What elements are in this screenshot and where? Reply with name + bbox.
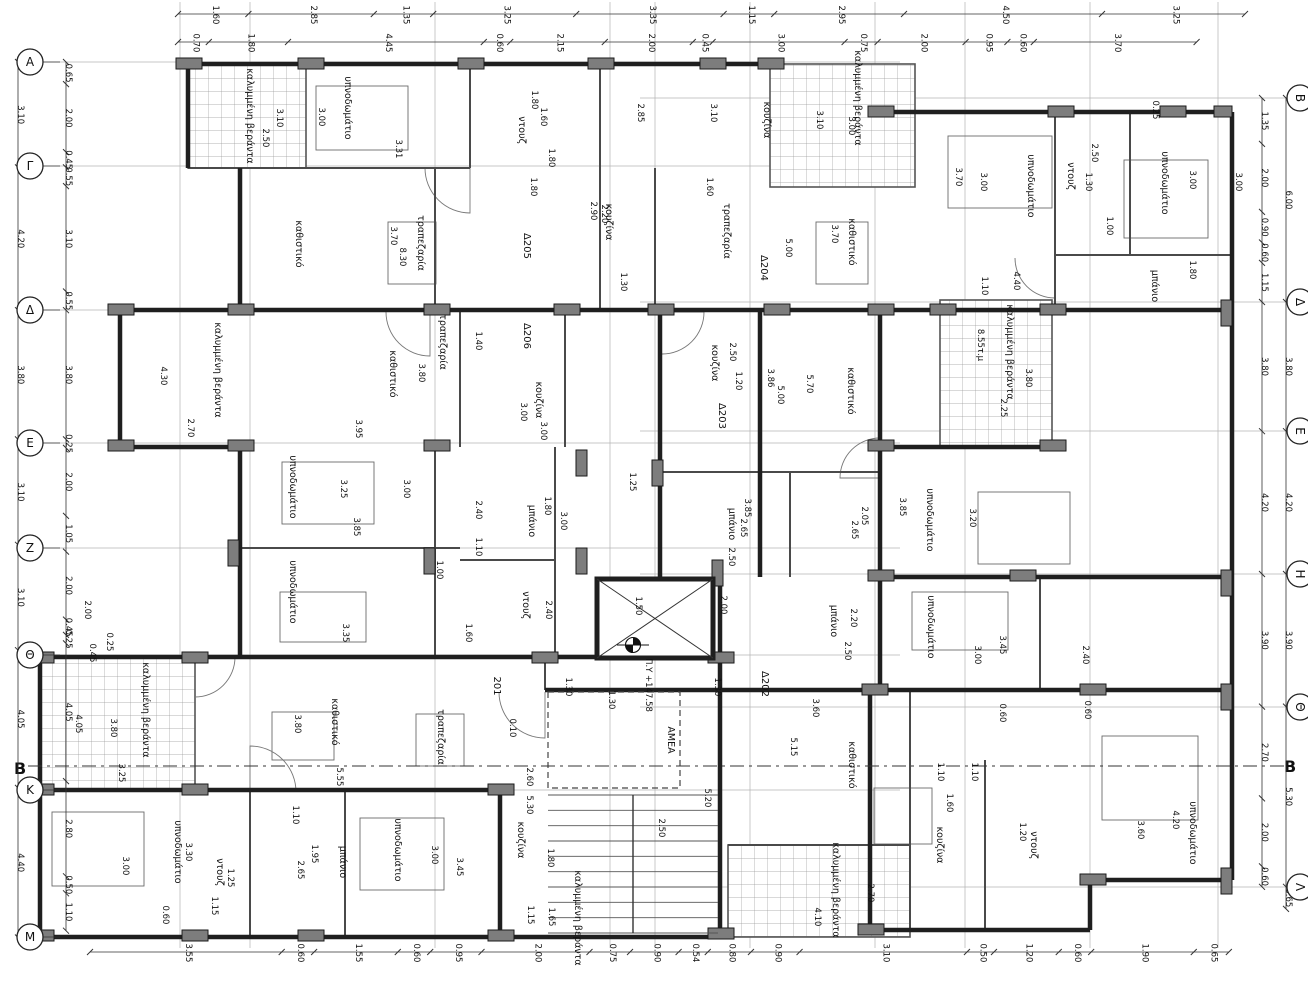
concrete-column	[182, 784, 208, 795]
svg-text:Β: Β	[1293, 94, 1307, 102]
svg-text:4.20: 4.20	[1170, 811, 1180, 830]
concrete-column	[1221, 300, 1232, 326]
svg-text:5.20: 5.20	[702, 789, 712, 808]
svg-text:3.86: 3.86	[765, 369, 775, 388]
concrete-column	[488, 784, 514, 795]
room-label: κουζίνα	[533, 382, 544, 419]
svg-text:Α: Α	[26, 55, 35, 69]
room-label: καλυμμένη βεράντα	[830, 842, 841, 937]
svg-text:4.05: 4.05	[15, 710, 25, 729]
concrete-column	[576, 450, 587, 476]
svg-text:2.00: 2.00	[919, 34, 929, 53]
svg-text:0.95: 0.95	[984, 34, 994, 53]
room-label: καλυμμένη βεράντα	[244, 68, 255, 163]
room-label: μπάνιο	[1149, 270, 1160, 303]
concrete-column	[1221, 868, 1232, 894]
svg-text:0.95: 0.95	[453, 944, 463, 963]
svg-text:1.35: 1.35	[401, 6, 411, 25]
svg-text:1.80: 1.80	[528, 178, 538, 197]
room-label: καθιστικό	[387, 350, 398, 397]
svg-text:3.10: 3.10	[15, 483, 25, 502]
room-label: υπνοδωμάτιο	[287, 560, 298, 623]
svg-text:5.00: 5.00	[775, 386, 785, 405]
svg-text:2.70: 2.70	[185, 419, 195, 438]
room-label: τραπεζαρία	[435, 709, 446, 765]
svg-text:0.45: 0.45	[87, 644, 97, 663]
concrete-column	[1040, 440, 1066, 451]
svg-text:3.25: 3.25	[1171, 6, 1181, 25]
unit-number: Δ204	[758, 255, 769, 281]
svg-text:1.30: 1.30	[606, 691, 616, 710]
concrete-column	[554, 304, 580, 315]
svg-text:1.25: 1.25	[225, 869, 235, 888]
concrete-column	[868, 106, 894, 117]
svg-text:0.45: 0.45	[700, 34, 710, 53]
svg-text:1.95: 1.95	[309, 845, 319, 864]
unit-number: Δ203	[716, 403, 727, 429]
svg-text:1.10: 1.10	[979, 277, 989, 296]
room-label: τραπεζαρία	[415, 215, 426, 271]
svg-text:3.25: 3.25	[116, 764, 126, 783]
svg-text:Ε: Ε	[26, 436, 34, 450]
svg-text:Λ: Λ	[1293, 883, 1307, 892]
svg-text:3.00: 3.00	[429, 846, 439, 865]
room-label: κουζίνα	[709, 345, 720, 382]
concrete-column	[1214, 106, 1232, 117]
svg-text:0.60: 0.60	[1072, 944, 1082, 963]
svg-text:1.30: 1.30	[563, 678, 573, 697]
svg-text:2.95: 2.95	[836, 6, 846, 25]
svg-text:3.00: 3.00	[316, 108, 326, 127]
svg-text:3.00: 3.00	[1233, 173, 1243, 192]
room-label: καθιστικό	[845, 367, 856, 414]
svg-text:1.20: 1.20	[1023, 944, 1033, 963]
svg-text:1.60: 1.60	[463, 624, 473, 643]
svg-text:5.30: 5.30	[1283, 787, 1293, 806]
room-label: υπνοδωμάτιο	[287, 455, 298, 518]
veranda-area	[940, 300, 1052, 447]
room-label: καθιστικό	[846, 218, 857, 265]
svg-text:4.45: 4.45	[383, 34, 393, 53]
svg-text:1.15: 1.15	[746, 6, 756, 25]
room-label: καλυμμένη βεράντα	[140, 662, 151, 757]
svg-text:0.60: 0.60	[1259, 243, 1269, 262]
concrete-column	[764, 304, 790, 315]
svg-text:Γ: Γ	[27, 159, 34, 173]
svg-text:4.40: 4.40	[1011, 272, 1021, 291]
svg-text:3.85: 3.85	[897, 498, 907, 517]
svg-text:2.85: 2.85	[635, 104, 645, 123]
svg-text:2.50: 2.50	[727, 343, 737, 362]
svg-text:3.00: 3.00	[120, 857, 130, 876]
svg-text:0.25: 0.25	[104, 633, 114, 652]
room-label: υπνοδωμάτιο	[924, 488, 935, 551]
room-label: καλυμμένη βεράντα	[212, 322, 223, 417]
svg-text:1.40: 1.40	[473, 332, 483, 351]
svg-text:2.00: 2.00	[533, 944, 543, 963]
svg-text:5.15: 5.15	[788, 738, 798, 757]
concrete-column	[228, 540, 239, 566]
concrete-column	[182, 930, 208, 941]
svg-text:3.45: 3.45	[454, 858, 464, 877]
svg-text:2.20: 2.20	[848, 609, 858, 628]
svg-text:1.90: 1.90	[1139, 944, 1149, 963]
concrete-column	[1160, 106, 1186, 117]
room-label: κουζίνα	[934, 827, 945, 864]
room-label: υπνοδωμάτιο	[1159, 151, 1170, 214]
svg-text:3.80: 3.80	[1259, 357, 1269, 376]
room-label: υπνοδωμάτιο	[392, 818, 403, 881]
svg-text:2.65: 2.65	[849, 521, 859, 540]
room-label: υπνοδωμάτιο	[342, 76, 353, 139]
concrete-column	[708, 928, 734, 939]
svg-text:0.60: 0.60	[1259, 867, 1269, 886]
room-label: κουζίνα	[603, 204, 614, 241]
svg-text:3.80: 3.80	[63, 365, 73, 384]
svg-text:1.35: 1.35	[1259, 111, 1269, 130]
svg-text:0.60: 0.60	[997, 704, 1007, 723]
concrete-column	[858, 924, 884, 935]
svg-text:3.55: 3.55	[183, 944, 193, 963]
unit-number: Δ205	[521, 233, 532, 259]
concrete-column	[228, 304, 254, 315]
svg-text:1.60: 1.60	[704, 178, 714, 197]
svg-text:1.80: 1.80	[1187, 261, 1197, 280]
room-label: υπνοδωμάτιο	[172, 820, 183, 883]
concrete-column	[588, 58, 614, 69]
concrete-column	[1080, 874, 1106, 885]
concrete-column	[182, 652, 208, 663]
concrete-column	[648, 304, 674, 315]
concrete-column	[868, 440, 894, 451]
svg-text:4.40: 4.40	[15, 853, 25, 872]
svg-text:3.85: 3.85	[742, 499, 752, 518]
svg-text:0.60: 0.60	[494, 34, 504, 53]
room-label: κουζίνα	[761, 102, 772, 139]
concrete-column	[1221, 684, 1232, 710]
svg-text:3.00: 3.00	[776, 34, 786, 53]
svg-text:2.00: 2.00	[1259, 168, 1269, 187]
svg-text:3.35: 3.35	[340, 624, 350, 643]
svg-text:8.55τ.μ: 8.55τ.μ	[975, 329, 985, 362]
svg-text:1.00: 1.00	[434, 561, 444, 580]
svg-text:1.80: 1.80	[529, 91, 539, 110]
svg-text:1.50: 1.50	[633, 597, 643, 616]
concrete-column	[108, 304, 134, 315]
svg-text:2.60: 2.60	[524, 768, 534, 787]
concrete-column	[298, 58, 324, 69]
svg-text:4.20: 4.20	[1259, 493, 1269, 512]
svg-text:3.35: 3.35	[647, 6, 657, 25]
room-label: καλυμμένη βεράντα	[572, 870, 583, 965]
svg-text:4.20: 4.20	[1283, 493, 1293, 512]
floor-plan-svg: ΒΒ1.602.851.353.253.351.152.954.503.250.…	[0, 0, 1308, 981]
svg-text:0.90: 0.90	[772, 944, 782, 963]
room-label: υπνοδωμάτιο	[1025, 154, 1036, 217]
svg-text:0.54: 0.54	[690, 944, 700, 963]
svg-text:3.10: 3.10	[15, 588, 25, 607]
svg-text:Κ: Κ	[26, 783, 35, 797]
svg-text:1.65: 1.65	[546, 908, 556, 927]
svg-text:0.80: 0.80	[726, 944, 736, 963]
svg-text:3.00: 3.00	[978, 173, 988, 192]
svg-text:3.80: 3.80	[1283, 357, 1293, 376]
svg-text:Π.Υ +147.58: Π.Υ +147.58	[643, 658, 653, 712]
svg-text:3.80: 3.80	[108, 719, 118, 738]
svg-text:2.40: 2.40	[473, 501, 483, 520]
svg-text:2.25: 2.25	[998, 399, 1008, 418]
svg-text:2.00: 2.00	[1259, 823, 1269, 842]
elevator-shaft	[597, 579, 713, 658]
svg-text:3.80: 3.80	[1023, 369, 1033, 388]
svg-text:1.30: 1.30	[1083, 173, 1093, 192]
svg-text:2.50: 2.50	[842, 642, 852, 661]
svg-text:0.60: 0.60	[295, 944, 305, 963]
room-label: καθιστικό	[329, 698, 340, 745]
svg-text:1.20: 1.20	[733, 372, 743, 391]
room-label: μπάνιο	[828, 605, 839, 638]
concrete-column	[488, 930, 514, 941]
svg-text:0.10: 0.10	[507, 719, 517, 738]
svg-text:3.95: 3.95	[353, 420, 363, 439]
concrete-column	[1048, 106, 1074, 117]
room-label: καθιστικό	[846, 741, 857, 788]
svg-text:0.55: 0.55	[63, 291, 73, 310]
svg-text:3.00: 3.00	[518, 403, 528, 422]
svg-text:1.60: 1.60	[538, 108, 548, 127]
floor-plan: ΒΒ1.602.851.353.253.351.152.954.503.250.…	[0, 0, 1308, 981]
unit-number: Δ202	[759, 671, 770, 697]
svg-text:Ζ: Ζ	[26, 541, 34, 555]
room-label: μπάνιο	[337, 846, 348, 879]
concrete-column	[532, 652, 558, 663]
room-label: μπάνιο	[726, 508, 737, 541]
concrete-column	[176, 58, 202, 69]
svg-text:0.60: 0.60	[1018, 34, 1028, 53]
concrete-column	[298, 930, 324, 941]
svg-text:3.60: 3.60	[810, 699, 820, 718]
svg-text:3.10: 3.10	[708, 104, 718, 123]
svg-text:2.65: 2.65	[295, 861, 305, 880]
svg-text:2.00: 2.00	[63, 109, 73, 128]
svg-text:1.30: 1.30	[712, 678, 722, 697]
svg-text:3.80: 3.80	[292, 715, 302, 734]
room-label: κουζίνα	[515, 822, 526, 859]
svg-text:0.65: 0.65	[1208, 944, 1218, 963]
svg-text:1.20: 1.20	[1017, 823, 1027, 842]
svg-text:1.10: 1.10	[63, 903, 73, 922]
room-label: ΑΜΕΑ	[665, 726, 676, 754]
svg-text:3.00: 3.00	[558, 512, 568, 531]
concrete-column	[868, 304, 894, 315]
svg-text:4.10: 4.10	[812, 908, 822, 927]
room-label: καλυμμένη βεράντα	[1004, 304, 1015, 399]
svg-text:3.70: 3.70	[953, 168, 963, 187]
svg-text:2.40: 2.40	[543, 601, 553, 620]
svg-text:1.15: 1.15	[209, 897, 219, 916]
svg-text:4.05: 4.05	[63, 703, 73, 722]
svg-text:3.70: 3.70	[829, 225, 839, 244]
concrete-column	[424, 440, 450, 451]
svg-text:0.50: 0.50	[977, 944, 987, 963]
room-label: υπνοδωμάτιο	[925, 595, 936, 658]
svg-text:3.25: 3.25	[502, 6, 512, 25]
svg-text:2.70: 2.70	[865, 884, 875, 903]
svg-text:3.10: 3.10	[15, 105, 25, 124]
svg-text:1.10: 1.10	[473, 538, 483, 557]
svg-text:3.80: 3.80	[15, 365, 25, 384]
svg-text:3.00: 3.00	[972, 646, 982, 665]
svg-text:4.50: 4.50	[1000, 6, 1010, 25]
svg-text:1.10: 1.10	[290, 806, 300, 825]
unit-number: Δ206	[521, 323, 532, 349]
room-label: ντουζ	[1065, 162, 1076, 190]
svg-text:2.00: 2.00	[646, 34, 656, 53]
svg-text:1.80: 1.80	[245, 34, 255, 53]
svg-text:1.15: 1.15	[525, 906, 535, 925]
concrete-column	[1040, 304, 1066, 315]
svg-text:0.25: 0.25	[1150, 101, 1160, 120]
room-label: καθιστικό	[293, 220, 304, 267]
svg-text:0.60: 0.60	[1082, 701, 1092, 720]
svg-text:4.05: 4.05	[73, 715, 83, 734]
svg-text:3.70: 3.70	[388, 227, 398, 246]
svg-text:1.60: 1.60	[944, 794, 954, 813]
svg-text:5.00: 5.00	[783, 239, 793, 258]
svg-text:2.90: 2.90	[588, 202, 598, 221]
svg-text:2.65: 2.65	[738, 519, 748, 538]
concrete-column	[424, 548, 435, 574]
svg-text:3.10: 3.10	[274, 109, 284, 128]
svg-text:2.50: 2.50	[656, 819, 666, 838]
svg-text:2.00: 2.00	[82, 601, 92, 620]
svg-text:3.00: 3.00	[401, 480, 411, 499]
room-label: ντουζ	[516, 116, 527, 144]
svg-text:4.20: 4.20	[15, 229, 25, 248]
svg-text:2.00: 2.00	[718, 596, 728, 615]
svg-text:3.10: 3.10	[880, 944, 890, 963]
svg-text:6.00: 6.00	[1283, 191, 1293, 210]
svg-text:0.60: 0.60	[411, 944, 421, 963]
svg-text:1.80: 1.80	[545, 849, 555, 868]
concrete-column	[868, 570, 894, 581]
svg-text:1.25: 1.25	[627, 473, 637, 492]
room-label: ντουζ	[1028, 831, 1039, 859]
svg-text:2.80: 2.80	[63, 819, 73, 838]
svg-text:1.60: 1.60	[210, 6, 220, 25]
svg-text:3.45: 3.45	[997, 636, 1007, 655]
svg-text:2.85: 2.85	[308, 6, 318, 25]
svg-text:0.55: 0.55	[63, 167, 73, 186]
room-label: καλυμμένη βεράντα	[852, 50, 863, 145]
svg-text:2.40: 2.40	[1080, 646, 1090, 665]
svg-text:4.30: 4.30	[158, 367, 168, 386]
svg-text:1.10: 1.10	[969, 763, 979, 782]
svg-text:1.00: 1.00	[1104, 217, 1114, 236]
svg-text:Θ: Θ	[1293, 702, 1307, 711]
svg-text:1.80: 1.80	[542, 497, 552, 516]
svg-text:2.05: 2.05	[859, 507, 869, 526]
svg-text:Μ: Μ	[25, 930, 35, 944]
concrete-column	[1221, 570, 1232, 596]
room-label: ντουζ	[520, 591, 531, 619]
concrete-column	[576, 548, 587, 574]
concrete-column	[758, 58, 784, 69]
unit-number: 201	[491, 676, 502, 695]
concrete-column	[458, 58, 484, 69]
svg-text:0.60: 0.60	[160, 906, 170, 925]
svg-text:1.55: 1.55	[353, 944, 363, 963]
svg-text:0.90: 0.90	[651, 944, 661, 963]
svg-text:1.10: 1.10	[935, 763, 945, 782]
svg-text:Ε: Ε	[1293, 427, 1307, 435]
section-marker: Β	[14, 759, 26, 778]
concrete-column	[930, 304, 956, 315]
concrete-column	[108, 440, 134, 451]
svg-text:Η: Η	[1293, 569, 1307, 578]
svg-text:3.70: 3.70	[1112, 34, 1122, 53]
svg-text:3.00: 3.00	[1187, 171, 1197, 190]
svg-text:3.60: 3.60	[1135, 821, 1145, 840]
svg-text:3.10: 3.10	[814, 111, 824, 130]
room-label: υπνοδωμάτιο	[1187, 801, 1198, 864]
svg-text:3.90: 3.90	[1259, 631, 1269, 650]
svg-text:1.05: 1.05	[63, 524, 73, 543]
veranda-area	[770, 64, 915, 187]
svg-text:5.70: 5.70	[804, 375, 814, 394]
svg-text:0.65: 0.65	[63, 64, 73, 83]
svg-text:1.80: 1.80	[546, 149, 556, 168]
svg-text:0.75: 0.75	[607, 944, 617, 963]
svg-text:3.85: 3.85	[351, 518, 361, 537]
svg-text:0.70: 0.70	[190, 34, 200, 53]
svg-text:5.55: 5.55	[334, 768, 344, 787]
svg-text:5.30: 5.30	[524, 796, 534, 815]
svg-text:2.15: 2.15	[555, 34, 565, 53]
concrete-column	[700, 58, 726, 69]
svg-text:1.30: 1.30	[618, 273, 628, 292]
concrete-column	[1080, 684, 1106, 695]
svg-text:3.20: 3.20	[967, 509, 977, 528]
svg-text:Δ: Δ	[1293, 298, 1307, 307]
svg-text:3.30: 3.30	[183, 843, 193, 862]
svg-text:0.90: 0.90	[1259, 218, 1269, 237]
svg-text:2.70: 2.70	[1259, 743, 1269, 762]
svg-text:Δ: Δ	[26, 303, 35, 317]
room-label: τραπεζαρία	[437, 314, 448, 370]
svg-text:Θ: Θ	[25, 648, 34, 662]
svg-text:3.90: 3.90	[1283, 631, 1293, 650]
concrete-column	[228, 440, 254, 451]
svg-text:2.50: 2.50	[726, 548, 736, 567]
concrete-column	[862, 684, 888, 695]
room-label: τραπεζαρία	[721, 203, 732, 259]
room-label: μπάνιο	[526, 505, 537, 538]
svg-text:2.00: 2.00	[63, 472, 73, 491]
svg-text:2.00: 2.00	[63, 576, 73, 595]
svg-text:3.31: 3.31	[393, 140, 403, 159]
concrete-column	[652, 460, 663, 486]
room-label: ντουζ	[214, 858, 225, 886]
svg-text:3.00: 3.00	[538, 422, 548, 441]
svg-text:2.50: 2.50	[260, 129, 270, 148]
svg-text:3.25: 3.25	[338, 480, 348, 499]
svg-text:2.50: 2.50	[1089, 144, 1099, 163]
svg-text:3.10: 3.10	[63, 229, 73, 248]
svg-text:3.80: 3.80	[416, 364, 426, 383]
concrete-column	[1010, 570, 1036, 581]
svg-text:8.30: 8.30	[397, 248, 407, 267]
